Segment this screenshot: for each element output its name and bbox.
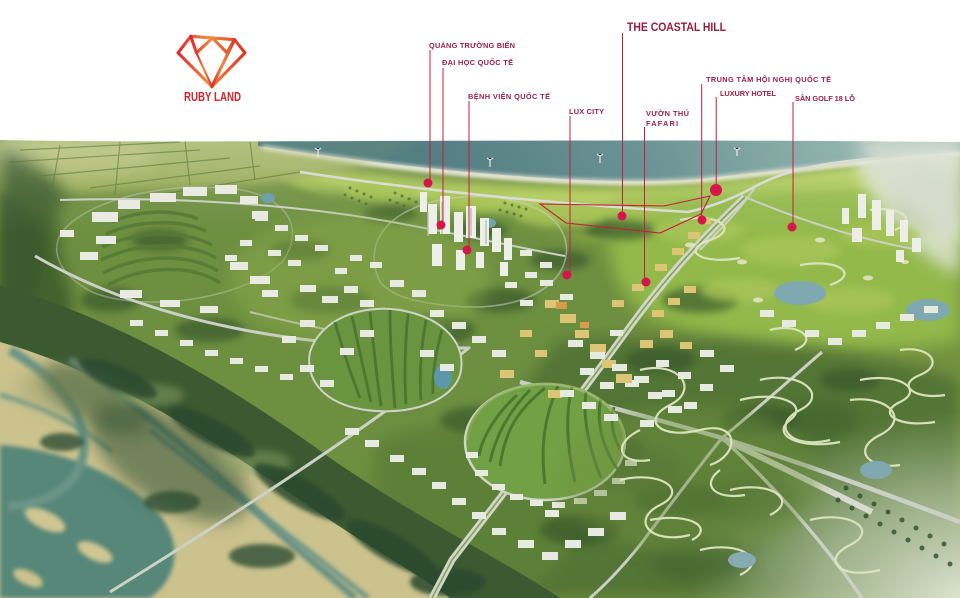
svg-text:THE COASTAL HILL: THE COASTAL HILL bbox=[627, 20, 726, 34]
svg-text:BỆNH VIỆN QUỐC TẾ: BỆNH VIỆN QUỐC TẾ bbox=[468, 91, 550, 101]
svg-text:LUX CITY: LUX CITY bbox=[569, 107, 604, 116]
svg-text:SÂN GOLF 18 LỖ: SÂN GOLF 18 LỖ bbox=[795, 94, 855, 103]
svg-text:FAFARI: FAFARI bbox=[646, 119, 678, 128]
svg-text:TRUNG TÂM HỘI NGHỊ QUỐC TẾ: TRUNG TÂM HỘI NGHỊ QUỐC TẾ bbox=[706, 74, 831, 84]
svg-text:RUBY LAND: RUBY LAND bbox=[184, 90, 241, 104]
svg-text:LUXURY HOTEL: LUXURY HOTEL bbox=[720, 89, 776, 98]
svg-text:QUẢNG TRƯỜNG BIỂN: QUẢNG TRƯỜNG BIỂN bbox=[429, 41, 515, 50]
svg-text:ĐẠI HỌC QUỐC TẾ: ĐẠI HỌC QUỐC TẾ bbox=[442, 57, 513, 67]
svg-text:VƯỜN THÚ: VƯỜN THÚ bbox=[646, 109, 689, 118]
